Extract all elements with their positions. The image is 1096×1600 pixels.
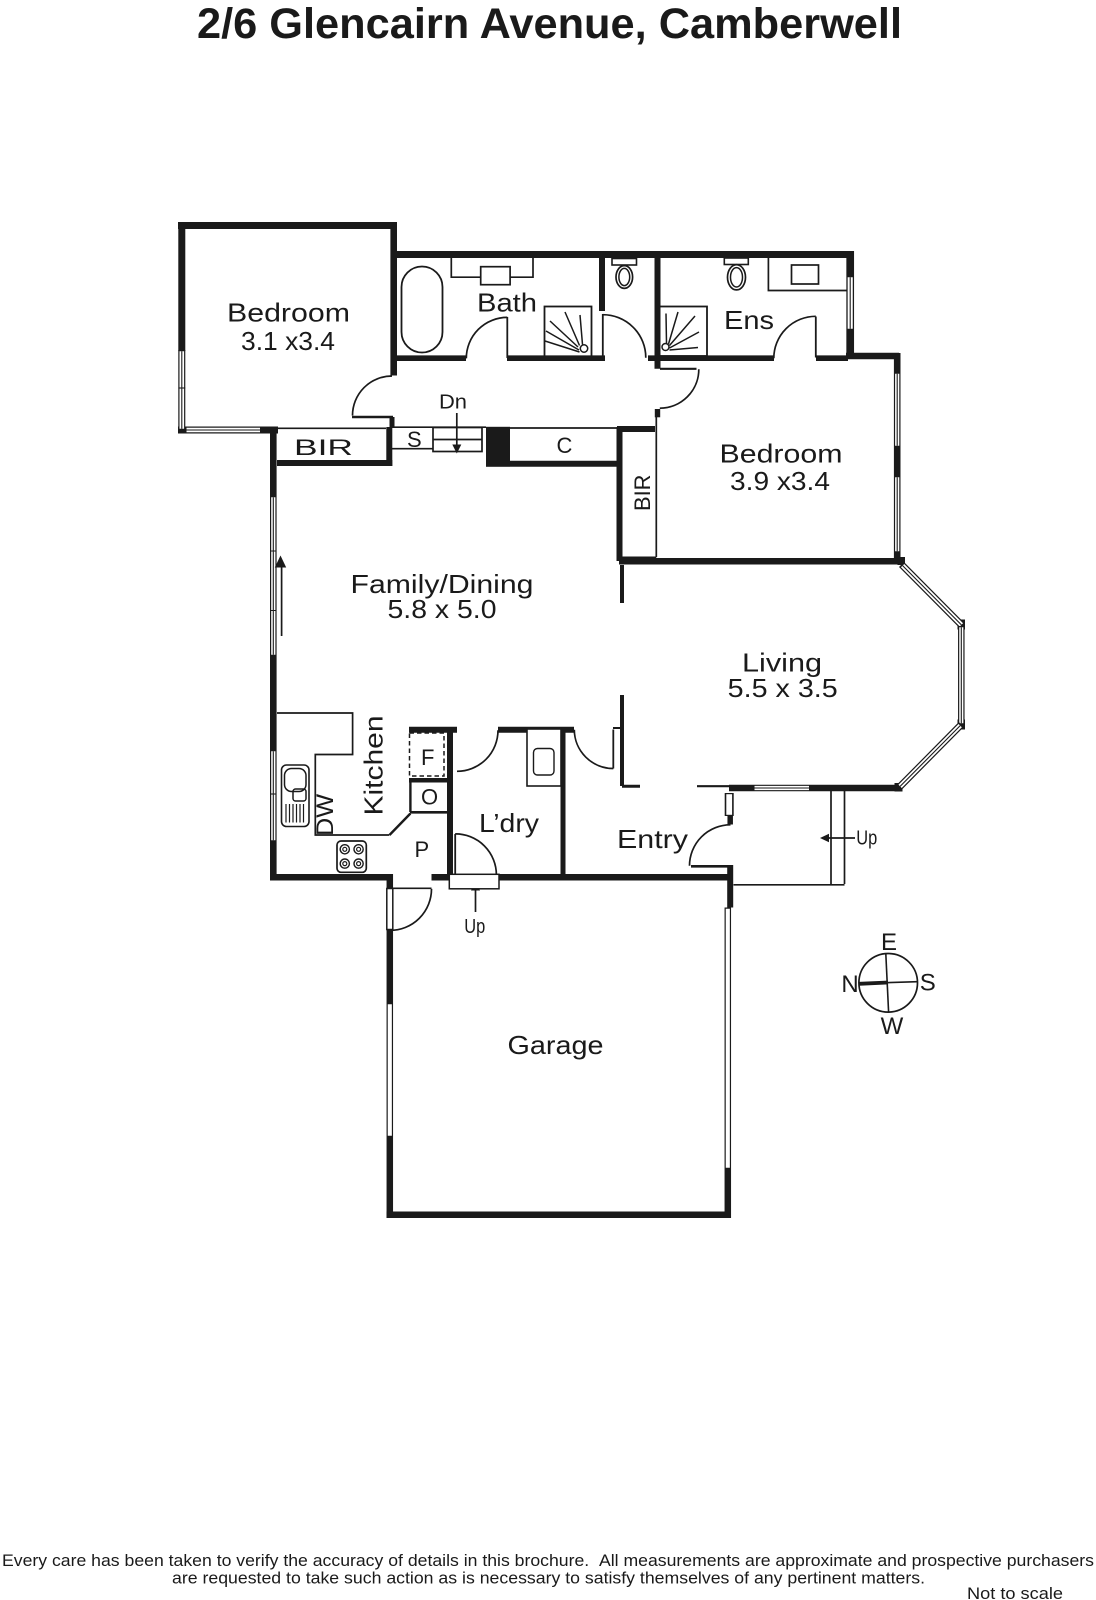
svg-text:5.5 x 3.5: 5.5 x 3.5 [728, 673, 838, 703]
svg-text:are requested to take such act: are requested to take such action as is … [172, 1570, 925, 1588]
svg-text:P: P [415, 837, 430, 862]
svg-text:F: F [421, 745, 434, 770]
svg-text:BIR: BIR [630, 475, 655, 512]
svg-text:Kitchen: Kitchen [359, 716, 389, 816]
svg-text:Bedroom: Bedroom [227, 298, 350, 328]
svg-text:Not to scale: Not to scale [967, 1585, 1063, 1600]
svg-text:S: S [920, 970, 936, 997]
svg-text:3.1 x3.4: 3.1 x3.4 [241, 326, 335, 356]
svg-text:W: W [881, 1013, 904, 1040]
svg-text:5.8 x 5.0: 5.8 x 5.0 [388, 594, 497, 624]
svg-text:Dn: Dn [439, 392, 467, 414]
svg-text:N: N [841, 971, 858, 998]
svg-text:Ens: Ens [724, 305, 774, 335]
svg-text:BIR: BIR [294, 435, 353, 460]
svg-text:E: E [881, 929, 897, 956]
svg-text:S: S [407, 427, 422, 452]
svg-text:Every care has been taken to v: Every care has been taken to verify the … [2, 1552, 1094, 1570]
svg-text:3.9 x3.4: 3.9 x3.4 [730, 466, 830, 496]
svg-text:Garage: Garage [508, 1030, 604, 1060]
svg-text:O: O [421, 785, 438, 810]
svg-text:Entry: Entry [617, 824, 688, 854]
svg-text:Up: Up [464, 916, 485, 938]
svg-text:C: C [557, 433, 573, 458]
svg-text:2/6 Glencairn Avenue, Camberwe: 2/6 Glencairn Avenue, Camberwell [197, 0, 902, 48]
svg-text:Up: Up [856, 828, 877, 850]
svg-text:Bath: Bath [477, 288, 537, 318]
svg-text:DW: DW [312, 794, 339, 836]
svg-text:L’dry: L’dry [479, 808, 539, 838]
svg-text:Bedroom: Bedroom [720, 439, 843, 469]
